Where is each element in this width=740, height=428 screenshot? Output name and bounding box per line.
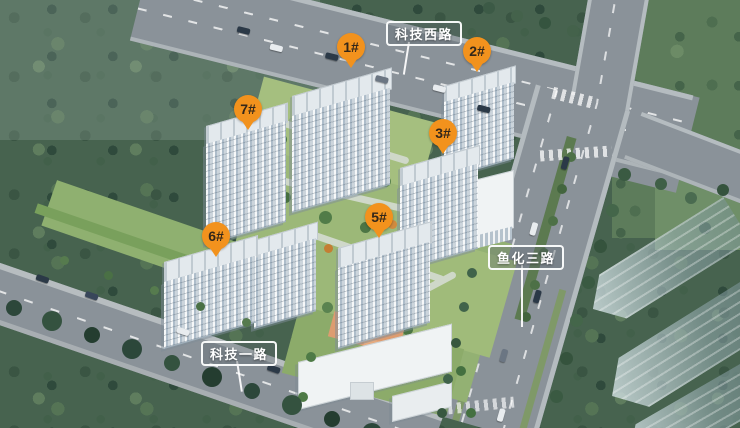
roof-structure xyxy=(350,382,374,400)
street-trees-keji-west xyxy=(483,2,495,14)
building-pin-1: 1# xyxy=(337,33,365,61)
trees-east-lawn xyxy=(655,178,667,190)
pin-tail-icon xyxy=(437,145,449,154)
pin-label: 5# xyxy=(371,209,387,225)
street-trees-keji-1 xyxy=(60,256,69,265)
pin-tail-icon xyxy=(242,121,254,130)
road-label-keji-1: 科技一路 xyxy=(201,341,277,366)
street-trees-yuhua-west xyxy=(467,268,477,278)
pin-tail-icon xyxy=(210,248,222,257)
kindergarten-trees xyxy=(306,352,316,362)
building-pin-7: 7# xyxy=(234,95,262,123)
forest-south-edge xyxy=(6,300,22,316)
road-label-yuhua-3: 鱼化三路 xyxy=(488,245,564,270)
pin-tail-icon xyxy=(471,63,483,72)
aerial-site-rendering: 科技西路 鱼化三路 科技一路 1# 2# 3# 5# 6# 7# xyxy=(0,0,740,428)
building-pin-6: 6# xyxy=(202,222,230,250)
pin-label: 3# xyxy=(435,125,451,141)
road-label-keji-west: 科技西路 xyxy=(386,21,462,46)
building-pin-5: 5# xyxy=(365,203,393,231)
pin-label: 1# xyxy=(343,39,359,55)
pin-label: 2# xyxy=(469,43,485,59)
leader-yuhua-3 xyxy=(521,265,523,327)
pin-label: 6# xyxy=(208,228,224,244)
building-pin-2: 2# xyxy=(463,37,491,65)
pin-tail-icon xyxy=(373,229,385,238)
pin-tail-icon xyxy=(345,59,357,68)
pin-label: 7# xyxy=(240,101,256,117)
building-pin-3: 3# xyxy=(429,119,457,147)
street-trees-yuhua-east xyxy=(618,168,631,181)
